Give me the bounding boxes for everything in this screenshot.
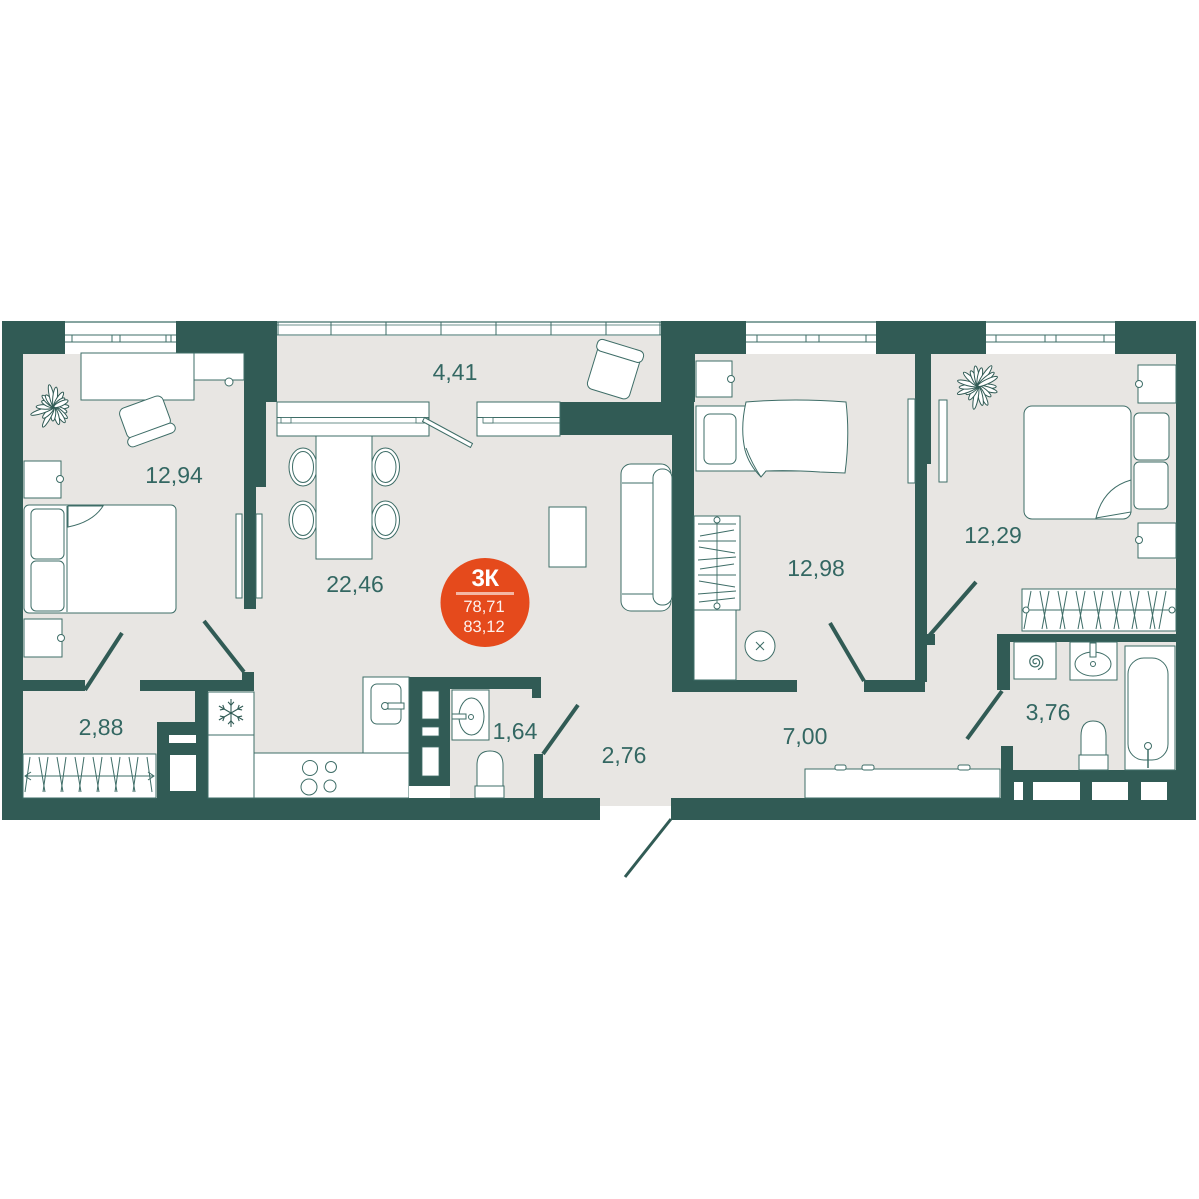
svg-text:4,41: 4,41	[433, 359, 478, 385]
svg-text:3,76: 3,76	[1026, 699, 1071, 725]
svg-text:3К: 3К	[472, 565, 500, 592]
svg-text:22,46: 22,46	[326, 571, 384, 597]
svg-text:12,94: 12,94	[145, 462, 203, 488]
svg-text:7,00: 7,00	[783, 723, 828, 749]
svg-text:12,98: 12,98	[787, 555, 845, 581]
svg-text:78,71: 78,71	[463, 598, 504, 616]
svg-text:83,12: 83,12	[463, 618, 504, 636]
svg-text:12,29: 12,29	[964, 522, 1022, 548]
svg-text:2,76: 2,76	[602, 742, 647, 768]
svg-text:1,64: 1,64	[493, 718, 538, 744]
svg-text:2,88: 2,88	[79, 714, 124, 740]
